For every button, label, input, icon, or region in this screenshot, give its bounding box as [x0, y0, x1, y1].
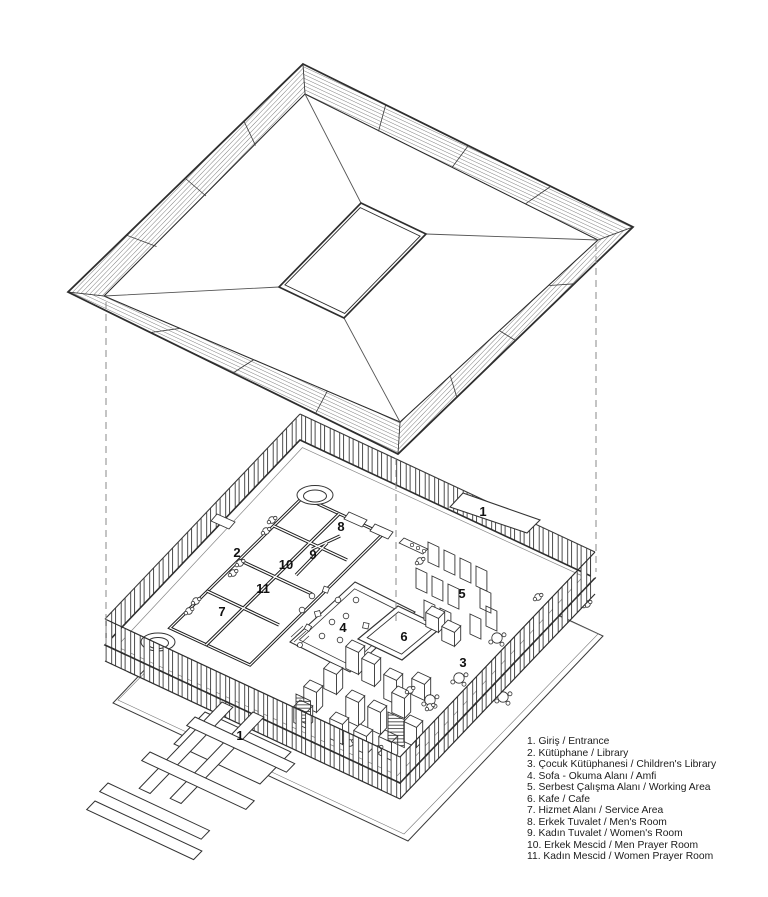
plan-label-mens-room: 8 [337, 519, 344, 534]
legend-item-reading-area: 4. Sofa - Okuma Alanı / Amfi [527, 771, 716, 783]
plan-label-entrance-ramp: 1 [236, 728, 243, 743]
axonometric-drawing-sheet: 1 2 8 9 10 11 7 4 6 5 3 1 1. Giriş / Ent… [0, 0, 768, 897]
plan-label-entrance-canopy: 1 [479, 504, 486, 519]
legend-item-womens-room: 9. Kadın Tuvalet / Women's Room [527, 828, 716, 840]
legend-item-library: 2. Kütüphane / Library [527, 748, 716, 760]
legend-item-mens-room: 8. Erkek Tuvalet / Men's Room [527, 817, 716, 829]
plan-label-womens-room: 9 [309, 547, 316, 562]
legend-item-working-area: 5. Serbest Çalışma Alanı / Working Area [527, 782, 716, 794]
plan-label-reading-area: 4 [339, 620, 346, 635]
legend-item-service-area: 7. Hizmet Alanı / Service Area [527, 805, 716, 817]
plan-label-service-area: 7 [218, 604, 225, 619]
plan-label-library: 2 [233, 545, 240, 560]
round-skylight-well-top [297, 486, 333, 505]
legend-item-childrens-library: 3. Çocuk Kütüphanesi / Children's Librar… [527, 759, 716, 771]
legend-item-women-prayer-room: 11. Kadın Mescid / Women Prayer Room [527, 851, 716, 863]
roof [68, 64, 633, 454]
plan-label-men-prayer-room: 10 [279, 557, 293, 572]
legend-item-entrance: 1. Giriş / Entrance [527, 736, 716, 748]
plan-label-cafe: 6 [400, 629, 407, 644]
legend: 1. Giriş / Entrance 2. Kütüphane / Libra… [527, 736, 716, 863]
plan-label-childrens-library: 3 [459, 655, 466, 670]
legend-item-men-prayer-room: 10. Erkek Mescid / Men Prayer Room [527, 840, 716, 852]
plan-label-women-prayer-room: 11 [256, 581, 270, 596]
legend-item-cafe: 6. Kafe / Cafe [527, 794, 716, 806]
plan-label-working-area: 5 [458, 586, 465, 601]
